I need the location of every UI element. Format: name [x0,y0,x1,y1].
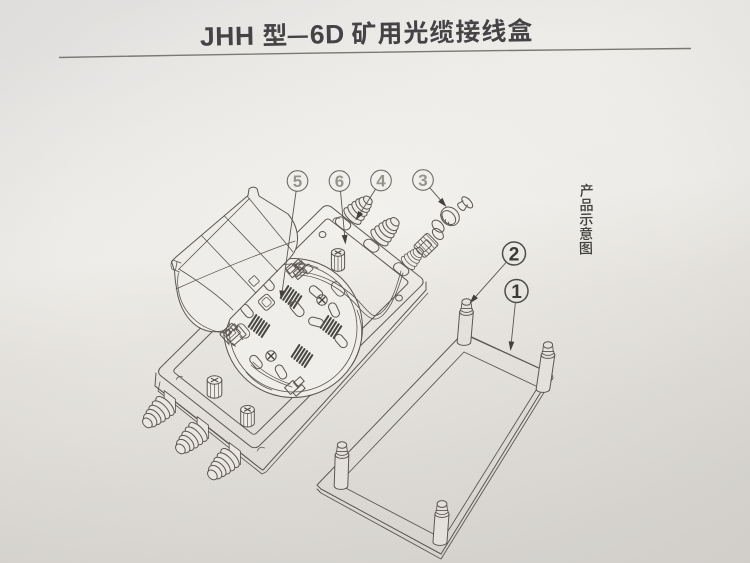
svg-text:6: 6 [335,172,344,191]
svg-text:5: 5 [293,172,302,191]
svg-text:6D: 6D [310,19,345,50]
svg-text:JHH: JHH [200,21,255,52]
svg-text:3: 3 [418,171,427,190]
svg-text:4: 4 [376,172,386,191]
svg-text:1: 1 [511,282,522,303]
svg-text:2: 2 [509,244,520,265]
